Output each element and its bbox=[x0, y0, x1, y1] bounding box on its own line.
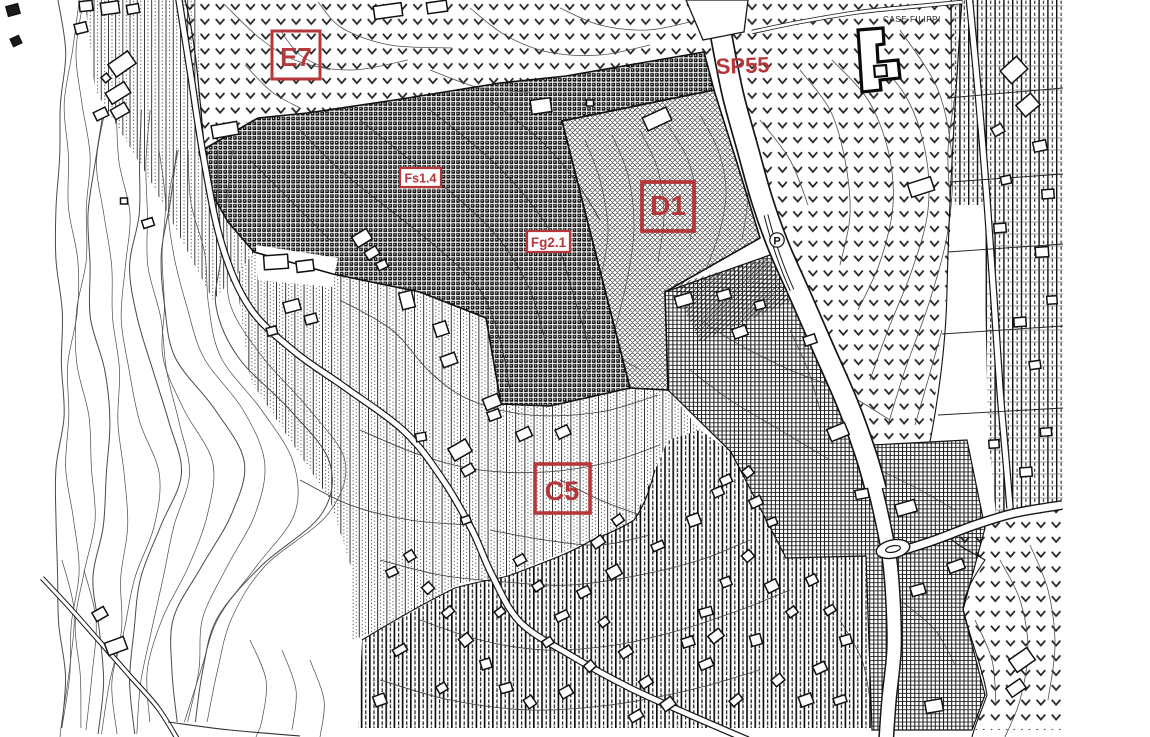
svg-text:P: P bbox=[773, 236, 780, 248]
svg-text:SP55: SP55 bbox=[715, 52, 770, 79]
svg-text:Fs1.4: Fs1.4 bbox=[405, 172, 437, 186]
svg-text:Fg2.1: Fg2.1 bbox=[531, 235, 567, 250]
svg-text:D1: D1 bbox=[650, 190, 686, 221]
svg-text:C5: C5 bbox=[545, 476, 580, 506]
svg-text:CASE FILIPPI: CASE FILIPPI bbox=[883, 15, 941, 24]
svg-text:E7: E7 bbox=[280, 42, 312, 72]
